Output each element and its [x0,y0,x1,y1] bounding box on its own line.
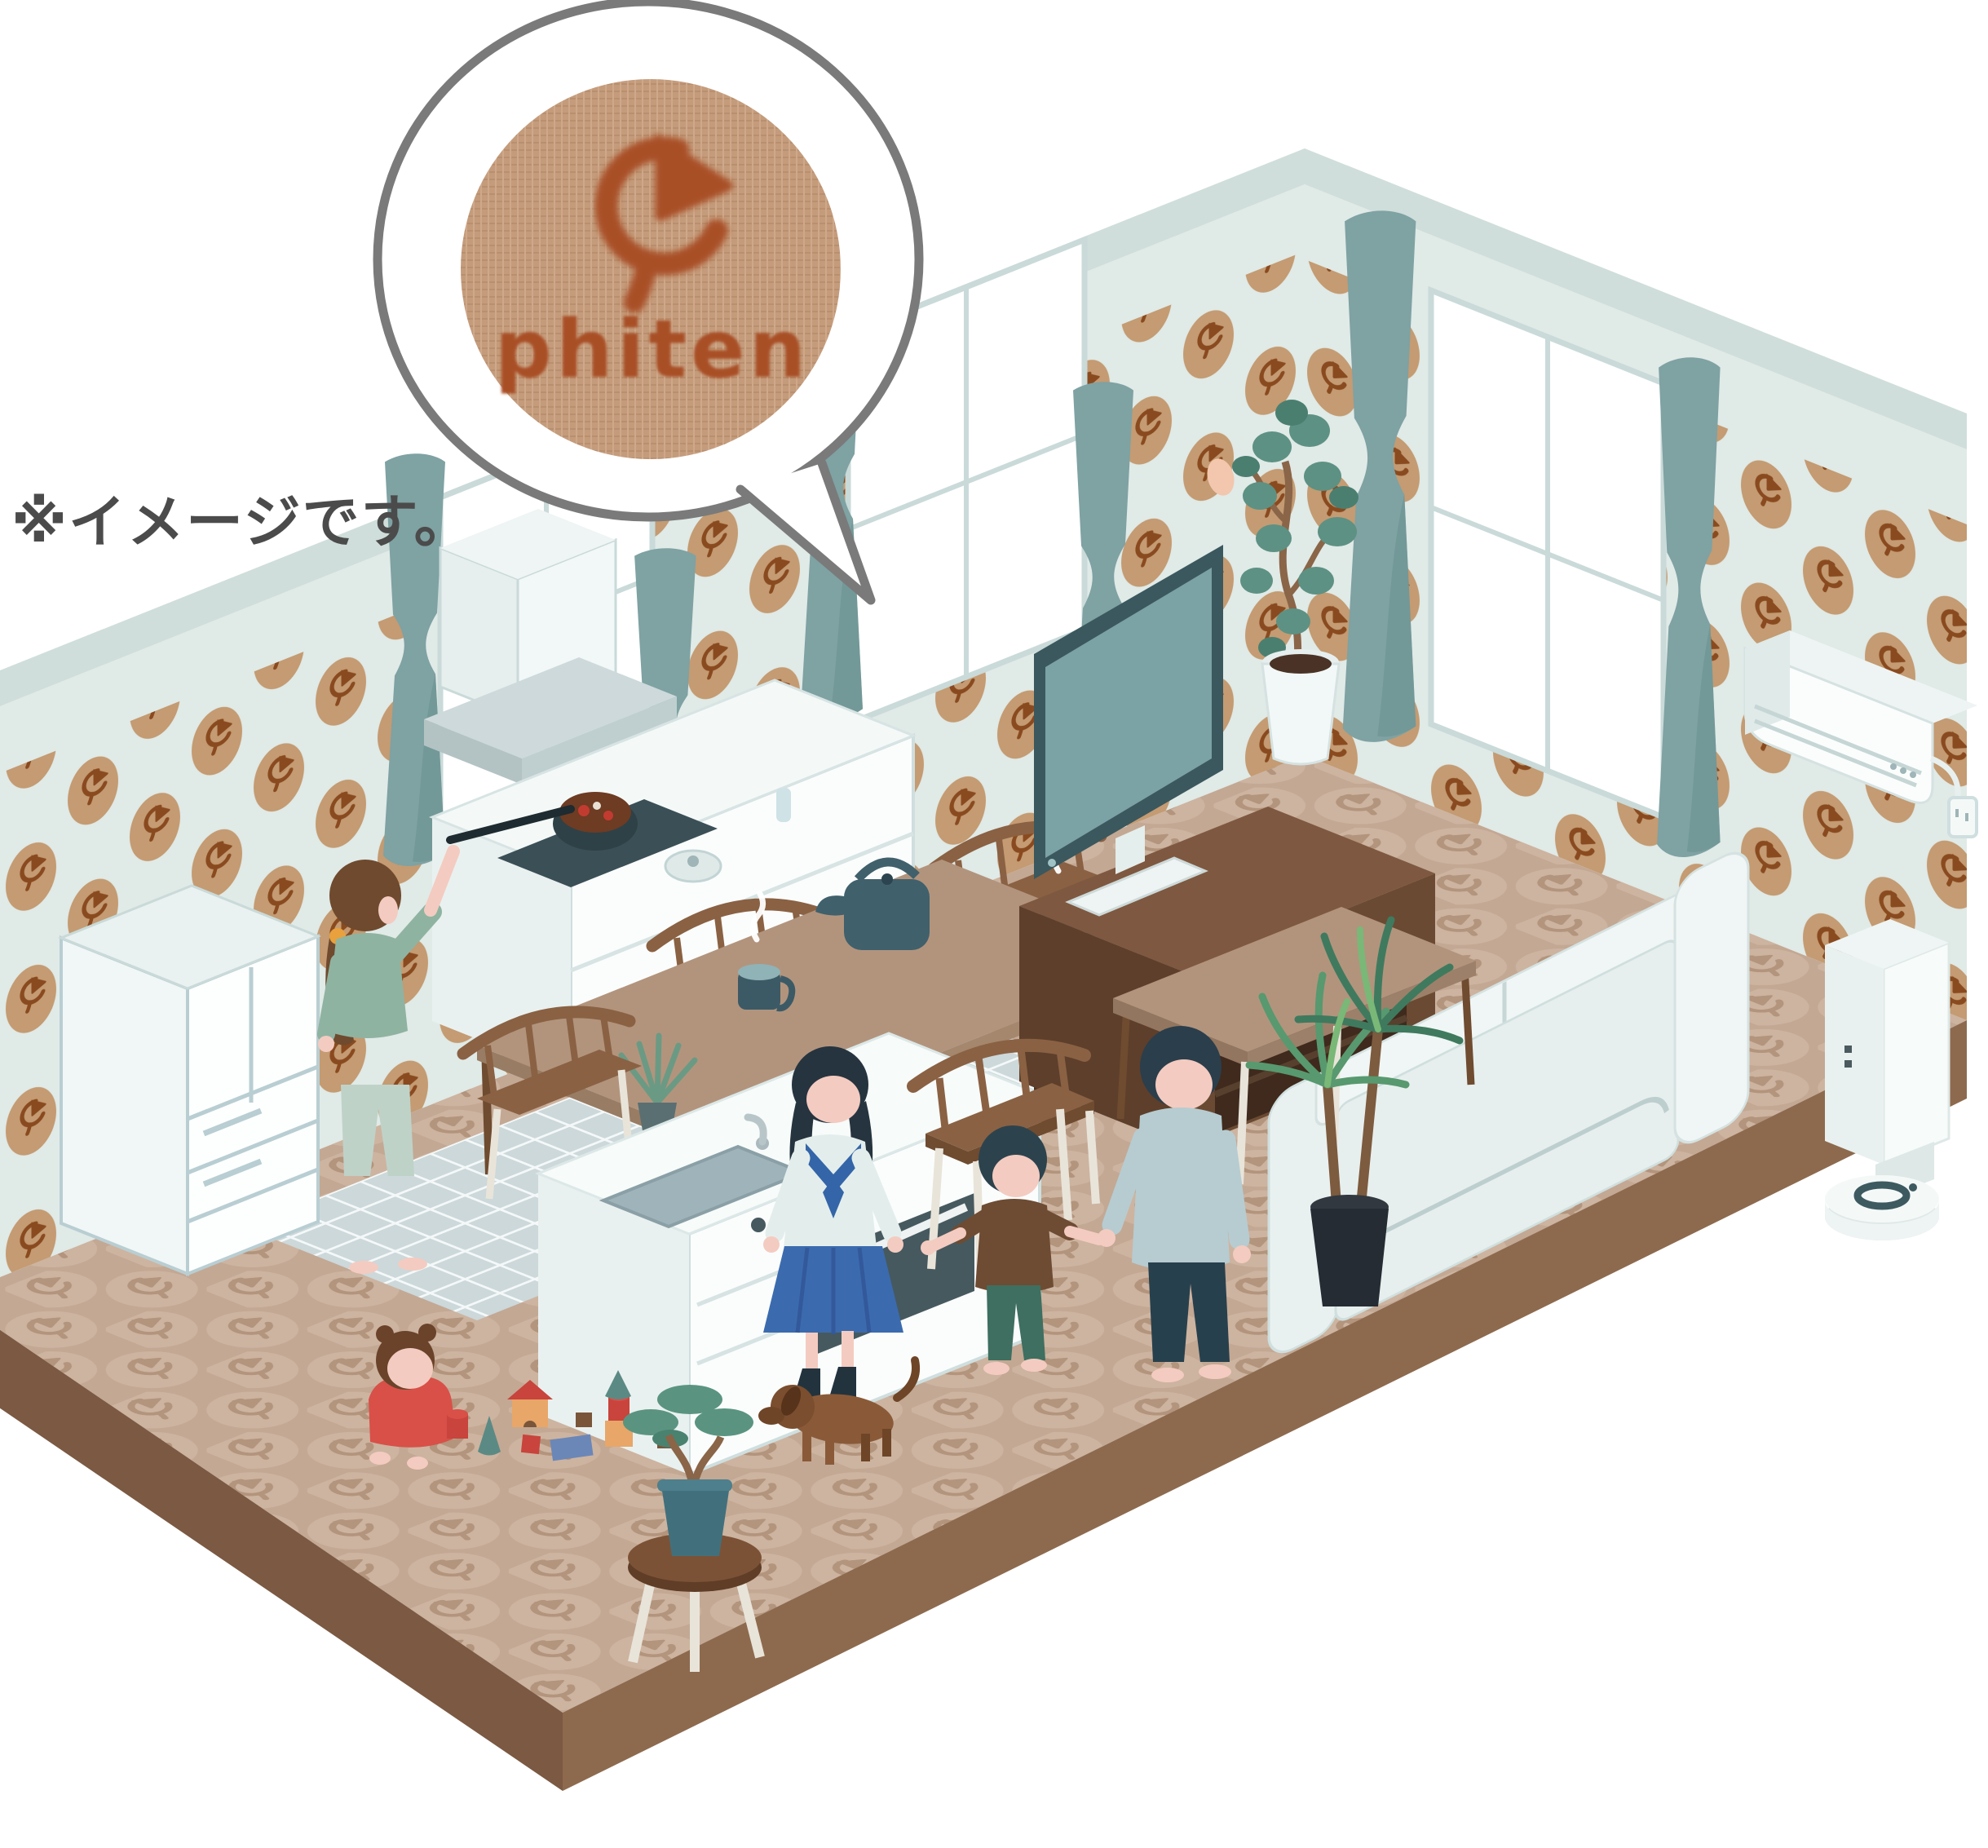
oven-knob [751,1218,766,1232]
illustration-stage: phiten ※イメージです。 [0,0,1988,1848]
phiten-logo-text: phiten [495,303,811,396]
white-pot [1262,664,1339,764]
black-planter [1310,1209,1389,1306]
bottle [776,788,791,822]
sofa-armrest [1675,844,1748,1152]
teal-pot [662,1491,729,1556]
robot-vacuum [1825,1175,1939,1240]
note-text: ※イメージです。 [11,489,473,555]
power-outlet [1949,798,1977,837]
refrigerator [61,886,318,1274]
isometric-room-illustration: phiten ※イメージです。 [0,0,1988,1848]
window-right-wall [1431,290,1663,817]
snout [758,1407,784,1425]
